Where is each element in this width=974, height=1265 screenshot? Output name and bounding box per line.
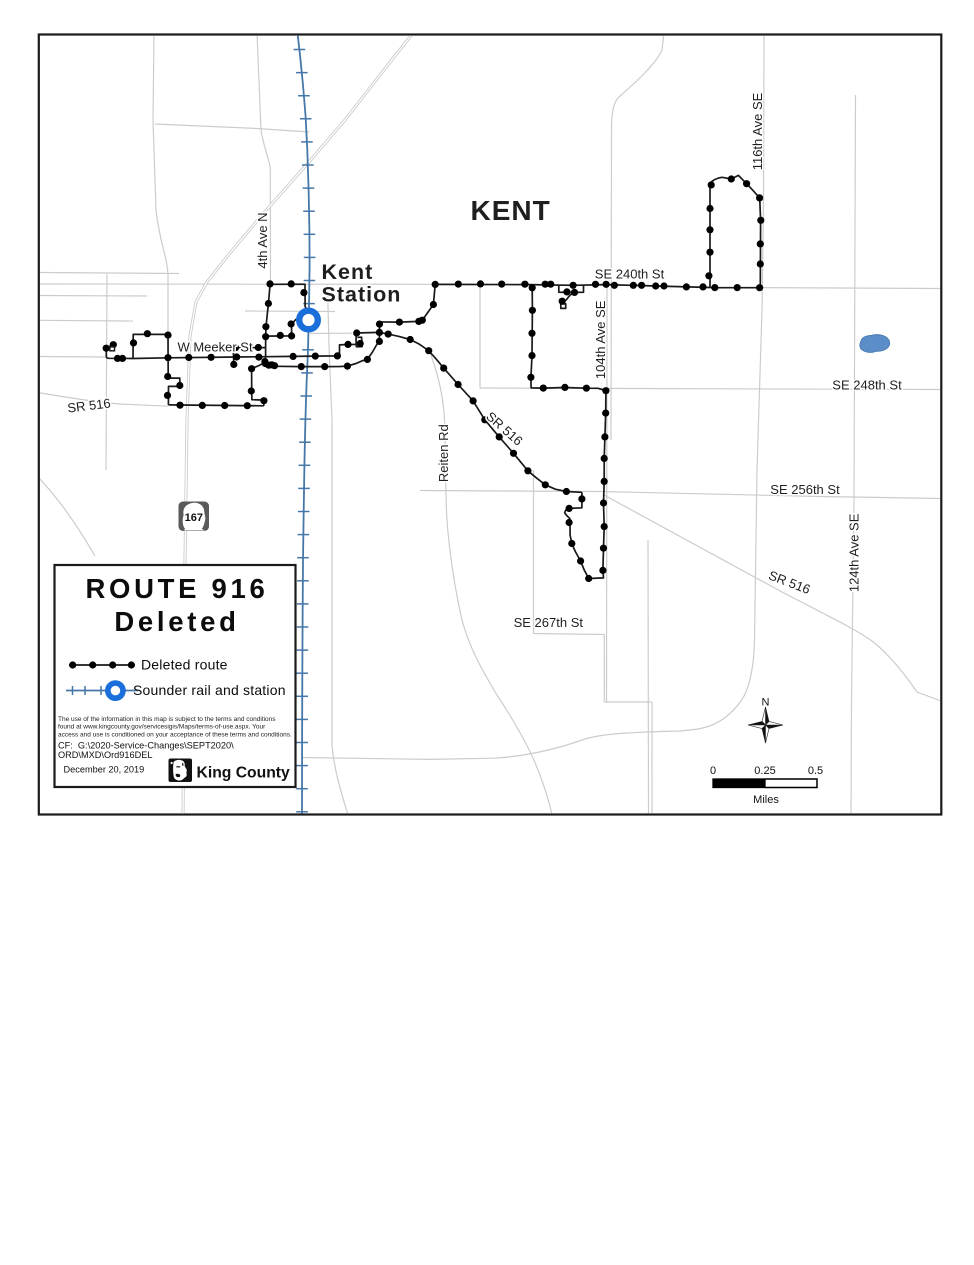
svg-text:4th Ave N: 4th Ave N	[255, 212, 270, 268]
svg-text:116th Ave SE: 116th Ave SE	[750, 92, 765, 170]
svg-text:124th Ave SE: 124th Ave SE	[847, 513, 862, 592]
svg-text:Reiten Rd: Reiten Rd	[436, 424, 451, 482]
svg-text:0: 0	[710, 765, 716, 777]
svg-text:Station: Station	[322, 282, 402, 306]
svg-text:SE 248th St: SE 248th St	[832, 378, 902, 393]
svg-text:SE 240th St: SE 240th St	[595, 266, 665, 281]
svg-text:0.25: 0.25	[754, 765, 775, 777]
svg-text:SE 256th St: SE 256th St	[770, 482, 840, 497]
svg-text:CF: G:\2020-Service-Changes\S: CF: G:\2020-Service-Changes\SEPT2020\	[58, 740, 234, 750]
svg-text:December 20, 2019: December 20, 2019	[64, 765, 145, 775]
svg-text:access and use is conditioned: access and use is conditioned on your ac…	[58, 731, 292, 738]
svg-text:King County: King County	[197, 764, 291, 781]
svg-text:Miles: Miles	[753, 794, 779, 806]
svg-text:Deleted route: Deleted route	[141, 656, 228, 672]
svg-text:The use of the information in: The use of the information in this map i…	[58, 716, 276, 723]
svg-text:SE 267th St: SE 267th St	[514, 615, 584, 630]
svg-text:found at www.kingcounty.gov/se: found at www.kingcounty.gov/servicesigis…	[58, 724, 266, 731]
svg-text:167: 167	[185, 512, 203, 524]
svg-text:Deleted: Deleted	[114, 606, 239, 637]
svg-text:ROUTE 916: ROUTE 916	[85, 573, 268, 604]
svg-text:Kent: Kent	[322, 260, 374, 284]
svg-text:ORD\MXD\Ord916DEL: ORD\MXD\Ord916DEL	[58, 750, 152, 760]
svg-text:0.5: 0.5	[808, 765, 823, 777]
svg-text:104th Ave SE: 104th Ave SE	[593, 300, 608, 379]
svg-text:N: N	[762, 697, 770, 709]
svg-text:W Meeker St: W Meeker St	[177, 340, 253, 355]
svg-text:KENT: KENT	[471, 195, 551, 226]
svg-text:Sounder rail and station: Sounder rail and station	[133, 682, 286, 698]
